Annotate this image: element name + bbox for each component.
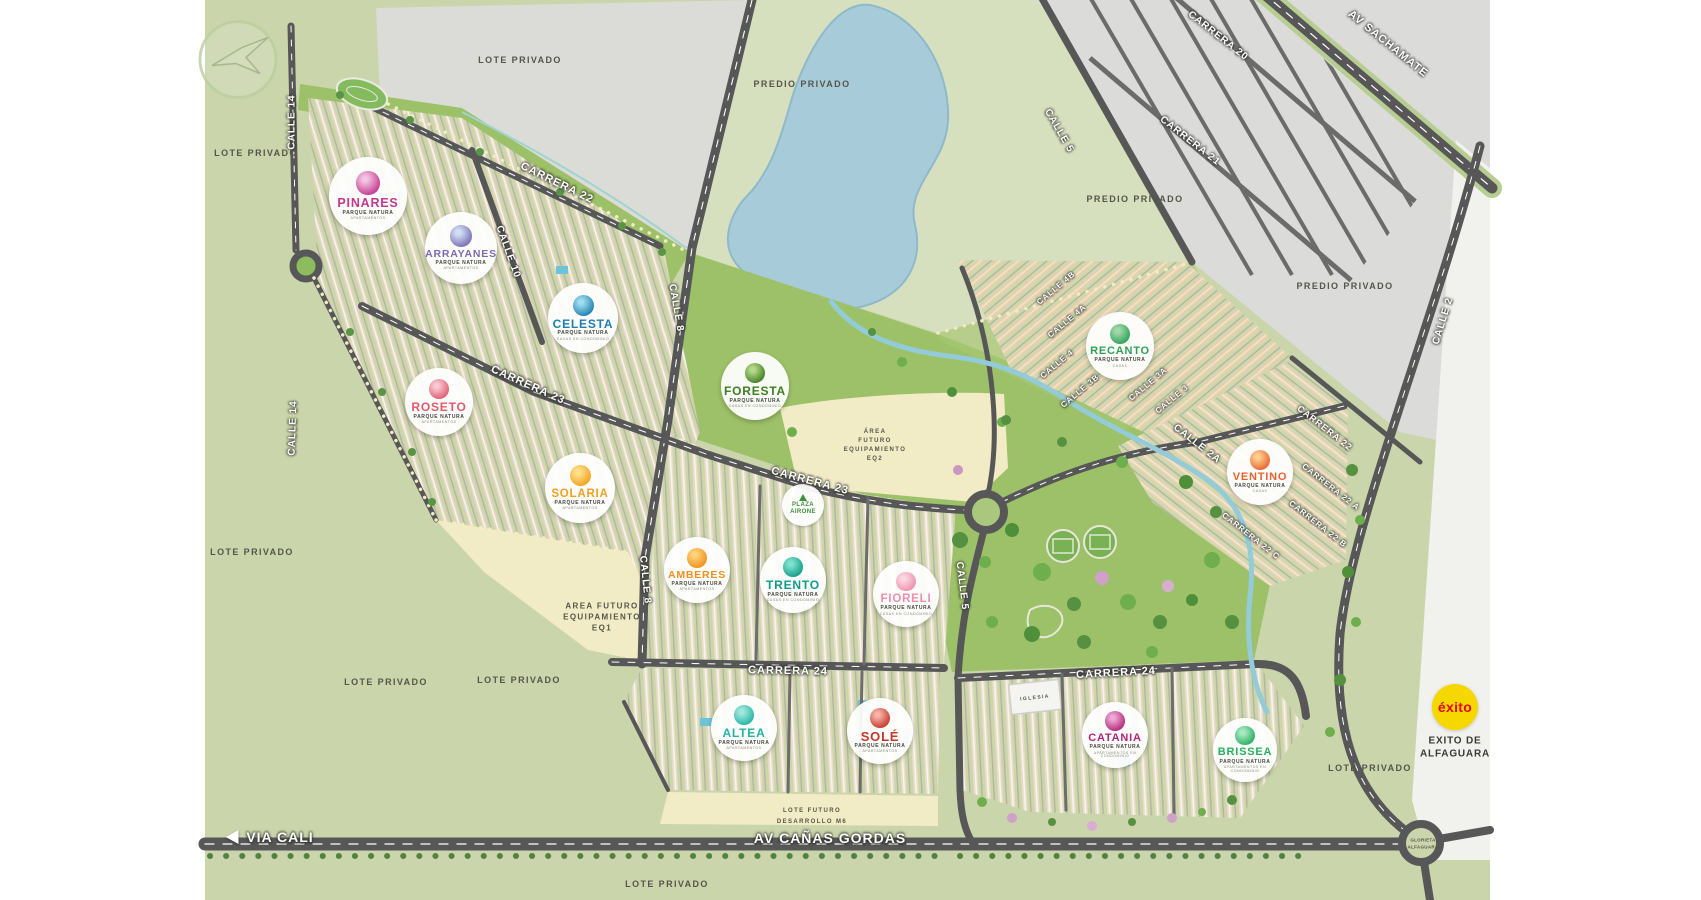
recanto-leaf-icon [1110, 324, 1130, 344]
project-badge-fioreli[interactable]: FIORELI PARQUE NATURA CASAS EN CONDOMINI… [873, 561, 939, 627]
glorieta-label-line2: ALFAGUARA [1408, 845, 1439, 850]
area-label-eq1-line3: EQ1 [592, 624, 612, 633]
amberes-amber-icon [687, 548, 707, 568]
project-badge-recanto[interactable]: RECANTO PARQUE NATURA CASAS [1086, 312, 1154, 380]
exito-store-label-line2: ALFAGUARA [1420, 749, 1490, 760]
road-label-av-canas-gordas: AV CAÑAS GORDAS [754, 830, 906, 846]
road-label-carrera-24-west: CARRERA 24 [748, 664, 828, 677]
area-label-lote-privado-1: LOTE PRIVADO [478, 55, 562, 65]
developer-logo-watermark [196, 18, 280, 107]
catania-rose-icon [1105, 711, 1125, 731]
project-badge-roseto[interactable]: ROSETO PARQUE NATURA APARTAMENTOS [405, 368, 473, 436]
roseto-rose-icon [429, 379, 449, 399]
project-badge-amberes[interactable]: AMBERES PARQUE NATURA APARTAMENTOS [664, 537, 730, 603]
ventino-sunset-icon [1250, 450, 1270, 470]
area-label-lote-futuro-line2: DESARROLLO M6 [777, 819, 847, 825]
area-label-eq2-line3: EQUIPAMIENTO [844, 447, 907, 453]
project-badge-celesta[interactable]: CELESTA PARQUE NATURA CASAS EN CONDOMINI… [548, 283, 618, 353]
road-label-calle-14-south: CALLE 14 [287, 400, 300, 456]
exito-store-logo[interactable]: éxito [1432, 684, 1478, 730]
trento-flower-icon [783, 557, 803, 577]
project-badge-solaria[interactable]: SOLARIA PARQUE NATURA APARTAMENTOS [545, 453, 615, 523]
area-label-eq2-line1: ÁREA [864, 429, 887, 435]
exito-store-label-line1: EXITO DE [1429, 736, 1482, 747]
area-label-predio-privado-2: PREDIO PRIVADO [1087, 194, 1184, 204]
project-badge-arrayanes[interactable]: ARRAYANES PARQUE NATURA APARTAMENTOS [425, 212, 497, 284]
project-badge-sole[interactable]: SOLÉ PARQUE NATURA APARTAMENTOS [847, 698, 913, 764]
project-badge-trento[interactable]: TRENTO PARQUE NATURA CASAS EN CONDOMINIO [760, 547, 826, 613]
fioreli-flower-icon [896, 572, 916, 592]
area-label-lote-privado-2: LOTE PRIVADO [214, 148, 298, 158]
project-badge-brissea[interactable]: BRISSEA PARQUE NATURA APARTAMENTOS EN CO… [1213, 718, 1277, 782]
road-label-via-cali: VIA CALI [246, 829, 313, 845]
foresta-leaf-icon [745, 363, 765, 383]
project-badge-catania[interactable]: CATANIA PARQUE NATURA APARTAMENTOS EN CO… [1082, 702, 1148, 768]
area-label-eq2-line2: FUTURO [858, 438, 891, 444]
pinares-flower-icon [356, 171, 379, 194]
altea-swirl-icon [734, 705, 754, 725]
area-label-lote-privado-3: LOTE PRIVADO [210, 547, 294, 557]
project-badge-altea[interactable]: ALTEA PARQUE NATURA APARTAMENTOS [711, 695, 777, 761]
road-label-calle-14-north: CALLE 14 [287, 94, 298, 149]
area-label-eq1-line2: EQUIPAMIENTO [563, 613, 641, 622]
area-label-predio-privado-1: PREDIO PRIVADO [754, 79, 851, 89]
area-label-lote-privado-7: LOTE PRIVADO [1328, 763, 1412, 773]
project-badge-foresta[interactable]: FORESTA PARQUE NATURA CASAS EN CONDOMINI… [721, 352, 789, 420]
area-label-lote-privado-5: LOTE PRIVADO [477, 675, 561, 685]
via-cali-direction-arrow [226, 830, 239, 844]
area-label-predio-privado-3: PREDIO PRIVADO [1297, 281, 1394, 291]
project-badge-pinares[interactable]: PINARES PARQUE NATURA APARTAMENTOS [329, 157, 407, 235]
area-label-lote-futuro-line1: LOTE FUTURO [783, 808, 841, 814]
plaza-airone-badge[interactable]: PLAZA AIRONE [782, 484, 824, 526]
celesta-wave-icon [573, 295, 594, 316]
project-badge-ventino[interactable]: VENTINO PARQUE NATURA CASAS [1227, 439, 1293, 505]
solaria-sun-icon [570, 465, 591, 486]
area-label-eq1-line1: AREA FUTURO [565, 602, 638, 611]
area-label-eq2-line4: EQ2 [867, 456, 883, 462]
area-label-lote-privado-4: LOTE PRIVADO [344, 677, 428, 687]
masterplan-map: PINARES PARQUE NATURA APARTAMENTOS ARRAY… [0, 0, 1701, 900]
arrayanes-flower-icon [450, 225, 472, 247]
area-label-lote-privado-6: LOTE PRIVADO [625, 879, 709, 889]
sole-flower-icon [870, 708, 890, 728]
glorieta-label-line1: GLORIETA [1410, 838, 1435, 843]
tree-icon [799, 494, 807, 501]
brissea-tree-icon [1235, 726, 1254, 745]
